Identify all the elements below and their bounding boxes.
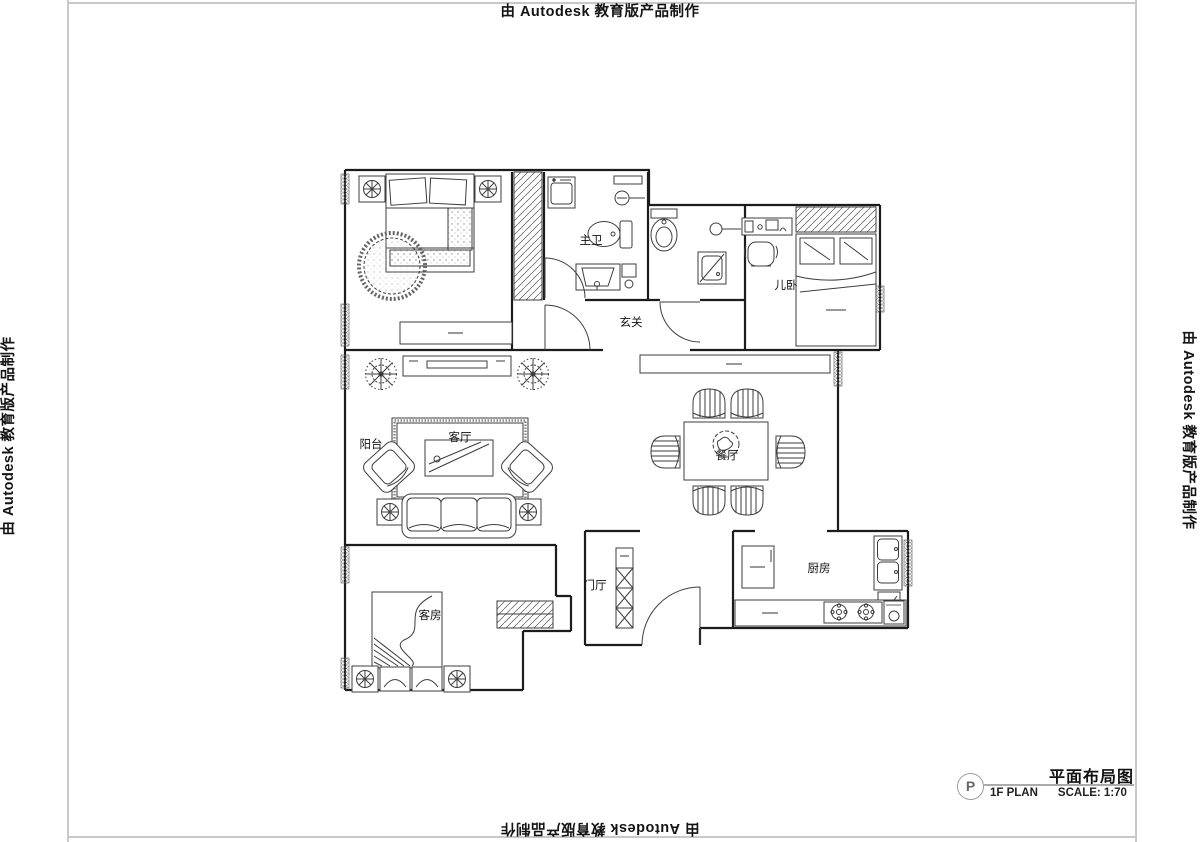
side-table-right bbox=[515, 499, 541, 525]
guest-pillow bbox=[412, 667, 442, 691]
nightstand-left bbox=[359, 176, 385, 202]
dining-chair bbox=[731, 389, 763, 418]
dining-chair bbox=[693, 486, 725, 515]
coffee-table bbox=[425, 440, 493, 476]
kids-wardrobe bbox=[796, 207, 876, 232]
guest-bath-door bbox=[660, 302, 700, 342]
room-label-dining-room: 餐厅 bbox=[716, 448, 739, 462]
master-bath-fixtures bbox=[548, 176, 645, 290]
dining-chair bbox=[776, 436, 805, 468]
room-label-kids-bedroom: 儿卧 bbox=[775, 279, 798, 292]
guest-nightstand-right bbox=[444, 666, 470, 692]
living-room-furniture bbox=[361, 356, 556, 538]
detail-mark-circle: P bbox=[957, 773, 984, 800]
dining-chair bbox=[651, 436, 680, 468]
plan-title: 平面布局图 bbox=[1030, 763, 1134, 787]
gas-stove bbox=[824, 602, 882, 623]
plant-left bbox=[365, 358, 397, 390]
bath-side-unit bbox=[622, 264, 636, 288]
round-rug bbox=[359, 233, 425, 299]
drawing-sheet: 由 Autodesk 教育版产品制作 由 Autodesk 教育版产品制作 由 … bbox=[0, 0, 1200, 842]
room-label-master-bath: 主卫 bbox=[580, 234, 603, 247]
kids-room-furniture bbox=[742, 207, 876, 346]
vanity-sink bbox=[576, 264, 620, 290]
shower-sink bbox=[698, 252, 726, 284]
sofa bbox=[402, 494, 516, 538]
tv-cabinet bbox=[403, 356, 511, 376]
kids-desk bbox=[742, 218, 792, 235]
room-label-foyer: 门厅 bbox=[584, 578, 607, 592]
guest-bed bbox=[372, 592, 442, 668]
bench-hatch bbox=[497, 601, 553, 628]
washer bbox=[548, 177, 575, 208]
room-label-living-room: 客厅 bbox=[449, 430, 472, 444]
kitchen-furniture bbox=[735, 536, 906, 626]
hallway-cabinet bbox=[640, 355, 830, 373]
dresser bbox=[400, 322, 512, 344]
master-bedroom-furniture bbox=[359, 172, 542, 344]
kids-bed bbox=[796, 234, 876, 346]
nightstand-right bbox=[475, 176, 501, 202]
toilet-2 bbox=[651, 209, 677, 251]
dining-chair bbox=[731, 486, 763, 515]
room-label-guest-room: 客房 bbox=[419, 608, 442, 622]
guest-bath-fixtures bbox=[651, 209, 741, 284]
guest-nightstand-left bbox=[352, 666, 378, 692]
scale-label: SCALE: 1:70 bbox=[1058, 787, 1127, 799]
shoe-cabinet bbox=[616, 548, 633, 628]
plan-label: 1F PLAN bbox=[990, 787, 1038, 799]
kitchen-sink bbox=[874, 536, 902, 590]
wardrobe-hatch bbox=[514, 172, 542, 300]
side-table-left bbox=[377, 499, 403, 525]
wall-lamp bbox=[615, 191, 645, 205]
room-label-entry-hall: 玄关 bbox=[620, 315, 643, 329]
bath-shelf bbox=[614, 176, 642, 184]
room-label-kitchen: 厨房 bbox=[808, 562, 831, 575]
plant-right bbox=[517, 358, 549, 390]
armchair-right bbox=[499, 439, 556, 495]
kids-chair bbox=[745, 242, 778, 266]
wall-lamp-2 bbox=[710, 223, 741, 235]
room-label-balcony: 阳台 bbox=[360, 437, 383, 451]
guest-pillow bbox=[380, 667, 410, 691]
floor-plan-canvas: 主卫 玄关 儿卧 客厅 阳台 餐厅 门厅 厨房 客房 bbox=[0, 0, 1200, 842]
master-bedroom-door bbox=[545, 305, 590, 350]
fridge bbox=[742, 546, 774, 588]
entry-door bbox=[642, 587, 700, 645]
title-block: P 平面布局图 1F PLAN SCALE: 1:70 bbox=[940, 760, 1140, 810]
rice-cooker bbox=[884, 601, 904, 624]
dining-chair bbox=[693, 389, 725, 418]
